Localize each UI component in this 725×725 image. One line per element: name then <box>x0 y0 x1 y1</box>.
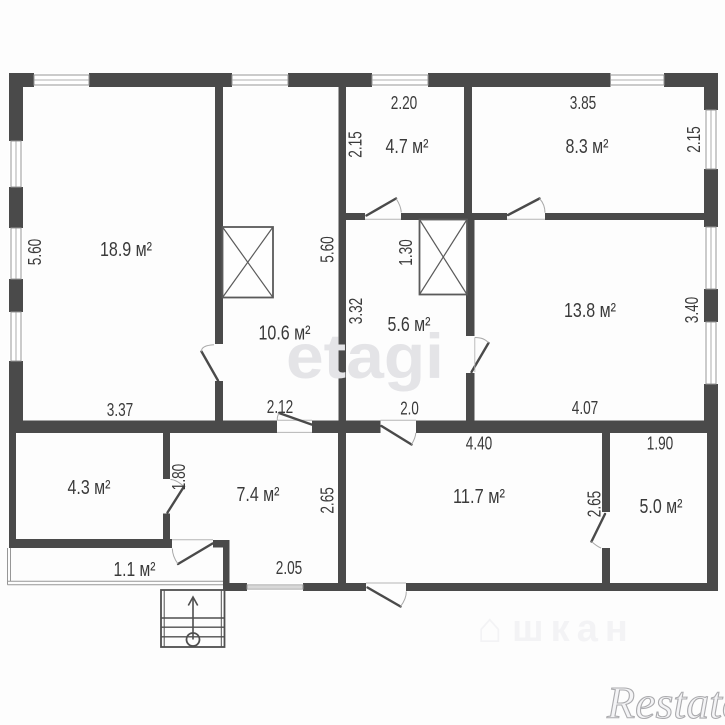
svg-text:7.4 м²: 7.4 м² <box>237 484 280 506</box>
svg-text:шкан: шкан <box>512 608 635 650</box>
svg-text:2.0: 2.0 <box>400 399 419 419</box>
svg-text:2.20: 2.20 <box>391 93 418 113</box>
svg-text:1.80: 1.80 <box>169 464 189 491</box>
svg-text:2.65: 2.65 <box>318 487 338 514</box>
svg-text:2.05: 2.05 <box>276 558 303 578</box>
svg-text:2.12: 2.12 <box>267 397 294 417</box>
svg-text:⌂: ⌂ <box>477 604 502 651</box>
svg-text:3.40: 3.40 <box>682 297 702 324</box>
svg-text:1.30: 1.30 <box>396 239 416 266</box>
svg-text:3.85: 3.85 <box>570 93 597 113</box>
svg-text:18.9 м²: 18.9 м² <box>100 239 152 261</box>
svg-text:10.6 м²: 10.6 м² <box>259 323 311 345</box>
svg-text:2.65: 2.65 <box>585 491 605 518</box>
svg-text:11.7 м²: 11.7 м² <box>453 486 505 508</box>
svg-text:13.8 м²: 13.8 м² <box>564 300 616 322</box>
svg-text:4.40: 4.40 <box>466 434 493 454</box>
svg-text:3.32: 3.32 <box>346 298 366 325</box>
svg-text:1.90: 1.90 <box>647 434 674 454</box>
svg-text:5.6 м²: 5.6 м² <box>388 314 431 336</box>
svg-text:5.60: 5.60 <box>318 236 338 263</box>
svg-text:1.1 м²: 1.1 м² <box>114 559 156 581</box>
svg-text:5.60: 5.60 <box>25 239 45 266</box>
svg-text:4.3 м²: 4.3 м² <box>68 477 111 499</box>
svg-text:5.0 м²: 5.0 м² <box>640 496 683 518</box>
svg-text:2.15: 2.15 <box>346 131 366 158</box>
svg-text:4.7 м²: 4.7 м² <box>386 136 429 158</box>
svg-text:8.3 м²: 8.3 м² <box>566 136 609 158</box>
svg-text:Restate: Restate <box>606 677 725 725</box>
svg-text:4.07: 4.07 <box>572 398 599 418</box>
svg-text:2.15: 2.15 <box>684 126 704 153</box>
svg-text:3.37: 3.37 <box>107 400 134 420</box>
